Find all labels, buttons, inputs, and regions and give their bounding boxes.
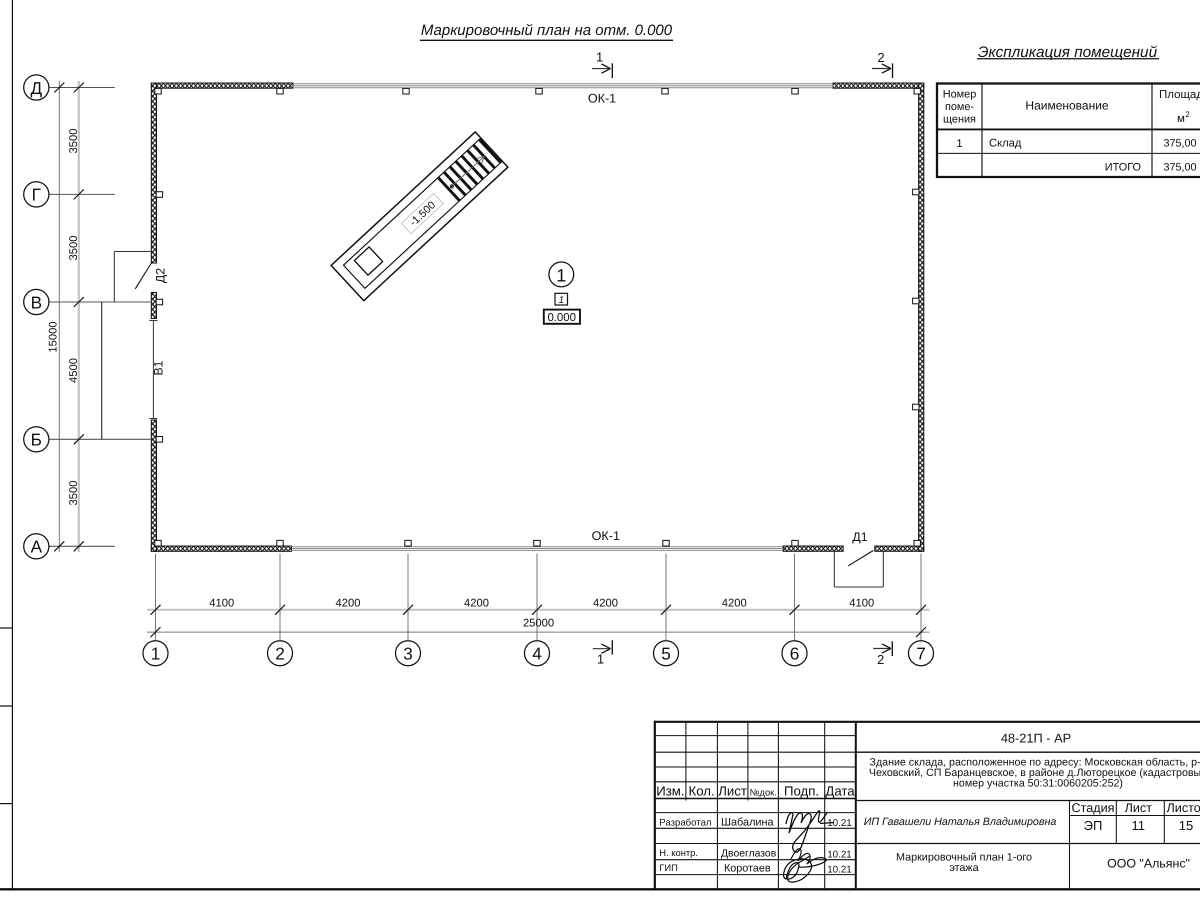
svg-text:3500: 3500 (68, 236, 80, 261)
svg-text:1: 1 (559, 295, 565, 306)
svg-text:375,00: 375,00 (1163, 138, 1196, 150)
svg-text:1: 1 (956, 138, 962, 150)
svg-text:15: 15 (1179, 818, 1193, 833)
svg-text:ЭП: ЭП (1084, 818, 1103, 833)
svg-text:Стадия: Стадия (1072, 801, 1115, 815)
svg-text:1: 1 (596, 50, 603, 65)
svg-text:этажа: этажа (949, 862, 978, 874)
svg-text:№док.: №док. (750, 788, 777, 798)
svg-text:4200: 4200 (336, 598, 361, 610)
svg-text:ОК-1: ОК-1 (592, 529, 620, 543)
svg-text:Разработал: Разработал (659, 818, 711, 829)
svg-text:10.21: 10.21 (827, 850, 852, 861)
svg-text:Шабалина: Шабалина (721, 817, 775, 829)
svg-text:номер участка 50:31:0060205:25: номер участка 50:31:0060205:252) (953, 778, 1123, 790)
svg-text:Кол.: Кол. (689, 784, 715, 799)
svg-text:ИТОГО: ИТОГО (1105, 161, 1141, 173)
svg-text:Г: Г (32, 185, 41, 205)
svg-text:1: 1 (151, 644, 161, 664)
svg-text:Дата: Дата (825, 784, 855, 799)
svg-text:В: В (31, 292, 42, 312)
svg-text:375,00: 375,00 (1163, 161, 1196, 173)
svg-text:Листов: Листов (1167, 801, 1200, 815)
svg-text:Лист: Лист (718, 784, 747, 799)
svg-text:ИП Гавашели Наталья Владимиров: ИП Гавашели Наталья Владимировна (864, 816, 1057, 828)
svg-text:Площадь: Площадь (1159, 89, 1200, 101)
svg-text:щения: щения (943, 114, 976, 126)
svg-text:Наименование: Наименование (1025, 99, 1109, 113)
svg-text:4100: 4100 (849, 598, 874, 610)
svg-text:3500: 3500 (68, 481, 80, 506)
svg-text:7: 7 (916, 644, 926, 664)
svg-text:2: 2 (877, 652, 884, 667)
svg-text:2: 2 (1185, 110, 1190, 119)
svg-text:3500: 3500 (68, 129, 80, 154)
svg-text:ООО "Альянс": ООО "Альянс" (1107, 857, 1190, 871)
svg-text:5: 5 (661, 644, 671, 664)
svg-text:Номер: Номер (943, 89, 977, 101)
svg-text:4: 4 (532, 644, 542, 664)
svg-text:ГИП: ГИП (659, 862, 678, 873)
svg-text:4100: 4100 (209, 598, 234, 610)
svg-text:3: 3 (403, 644, 413, 664)
svg-text:6: 6 (790, 644, 800, 664)
svg-text:м: м (1177, 113, 1185, 125)
svg-text:4200: 4200 (464, 598, 489, 610)
svg-text:Д1: Д1 (852, 530, 867, 544)
svg-text:2: 2 (877, 50, 884, 65)
svg-text:Изм.: Изм. (656, 784, 684, 799)
svg-text:48-21П - АР: 48-21П - АР (1001, 731, 1071, 746)
svg-text:1: 1 (556, 265, 566, 285)
svg-text:4500: 4500 (68, 358, 80, 383)
svg-text:4200: 4200 (593, 598, 618, 610)
svg-text:4200: 4200 (722, 598, 747, 610)
svg-text:0.000: 0.000 (547, 312, 576, 324)
svg-text:Н. контр.: Н. контр. (659, 847, 698, 858)
svg-text:10.21: 10.21 (827, 865, 852, 876)
svg-text:А: А (31, 537, 43, 557)
svg-text:1: 1 (597, 652, 604, 667)
svg-text:Б: Б (31, 430, 42, 450)
svg-text:15000: 15000 (48, 321, 60, 352)
svg-text:25000: 25000 (523, 618, 554, 630)
svg-text:Двоеглазов: Двоеглазов (721, 849, 777, 860)
svg-text:2: 2 (275, 644, 285, 664)
svg-text:Д2: Д2 (154, 268, 168, 283)
svg-text:Маркировочный план на отм. 0.0: Маркировочный план на отм. 0.000 (421, 22, 673, 39)
svg-text:Лист: Лист (1125, 801, 1153, 815)
svg-text:Коротаев: Коротаев (724, 862, 771, 874)
svg-text:поме-: поме- (945, 101, 974, 113)
svg-text:Подп.: Подп. (784, 784, 819, 799)
svg-text:Д: Д (30, 78, 42, 98)
svg-text:11: 11 (1132, 818, 1146, 833)
svg-text:Склад: Склад (989, 138, 1022, 150)
svg-text:ОК-1: ОК-1 (588, 91, 616, 105)
svg-text:В1: В1 (152, 360, 166, 375)
svg-text:10.21: 10.21 (827, 818, 852, 829)
